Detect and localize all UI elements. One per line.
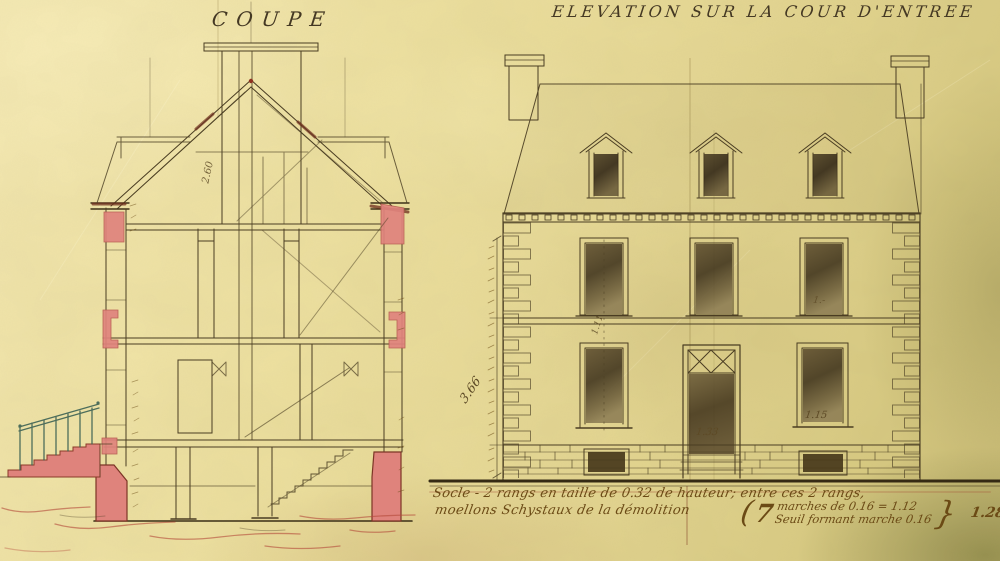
threshold-note-line: Seuil formant marche 0.16 xyxy=(774,513,933,526)
quoins-left xyxy=(503,222,533,478)
first-floor-window-note: 1.- xyxy=(812,295,826,306)
total-rise-value: 1.28 xyxy=(969,505,1000,521)
drawing-canvas xyxy=(0,0,1000,561)
first-floor-windows xyxy=(576,238,852,316)
cornice-with-dentils xyxy=(503,213,920,222)
quoins-right xyxy=(890,222,920,478)
steps-count: 7 xyxy=(754,501,776,526)
ground-window-width-dim: 1.15 xyxy=(804,410,828,421)
close-brace: } xyxy=(933,497,959,529)
coupe-title: COUPE xyxy=(211,7,336,31)
architectural-drawing-sheet: COUPE ELEVATION SUR LA COUR D'ENTREE Soc… xyxy=(0,0,1000,561)
elevation-title: ELEVATION SUR LA COUR D'ENTREE xyxy=(551,2,976,21)
door-width-dim: 1.33 xyxy=(695,427,719,438)
socle-note-line2: moellons Schystaux de la démolition xyxy=(434,503,691,518)
steps-calculation-note: ( 7 marches de 0.16 = 1.12 Seuil formant… xyxy=(738,497,1000,529)
roof-apex-accent xyxy=(249,79,253,83)
foundation-right xyxy=(372,452,401,521)
